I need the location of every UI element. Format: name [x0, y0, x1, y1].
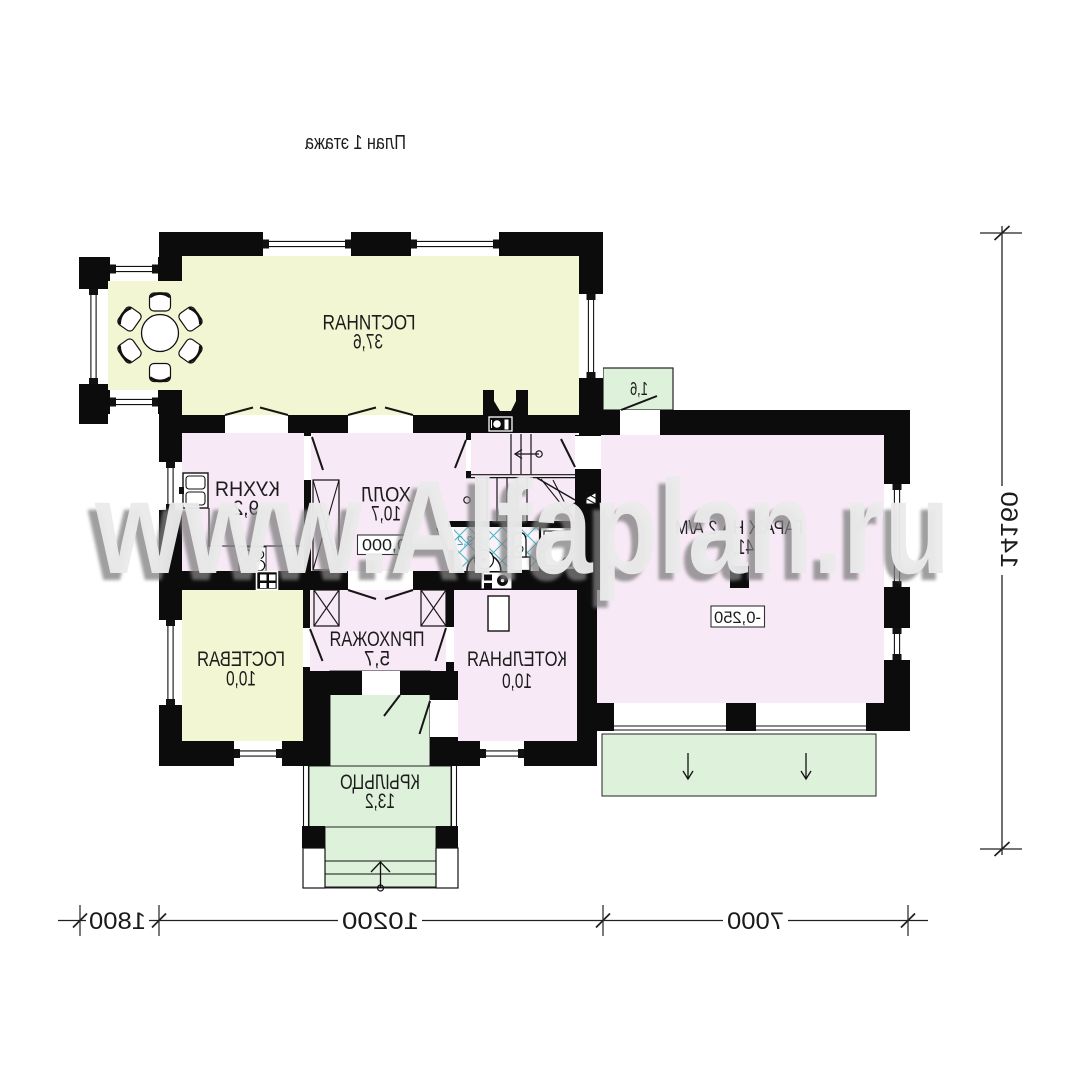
svg-text:10,0: 10,0 [502, 670, 532, 693]
svg-text:1,6: 1,6 [630, 379, 648, 399]
svg-text:План 1 этажа: План 1 этажа [304, 132, 406, 154]
svg-text:1800: 1800 [89, 908, 146, 935]
svg-text:www.: www. [94, 454, 390, 602]
svg-text:-0,250: -0,250 [714, 608, 761, 627]
svg-text:7000: 7000 [727, 908, 784, 935]
svg-text:10,0: 10,0 [226, 668, 256, 691]
svg-text:КОТЕЛЬНАЯ: КОТЕЛЬНАЯ [467, 648, 567, 671]
svg-text:14160: 14160 [995, 492, 1022, 569]
svg-text:5,7: 5,7 [364, 648, 390, 671]
svg-text:37,6: 37,6 [353, 331, 383, 354]
svg-text:10200: 10200 [342, 908, 419, 935]
svg-text:Alfaplan.ru: Alfaplan.ru [390, 454, 950, 602]
svg-text:13,2: 13,2 [365, 790, 395, 813]
